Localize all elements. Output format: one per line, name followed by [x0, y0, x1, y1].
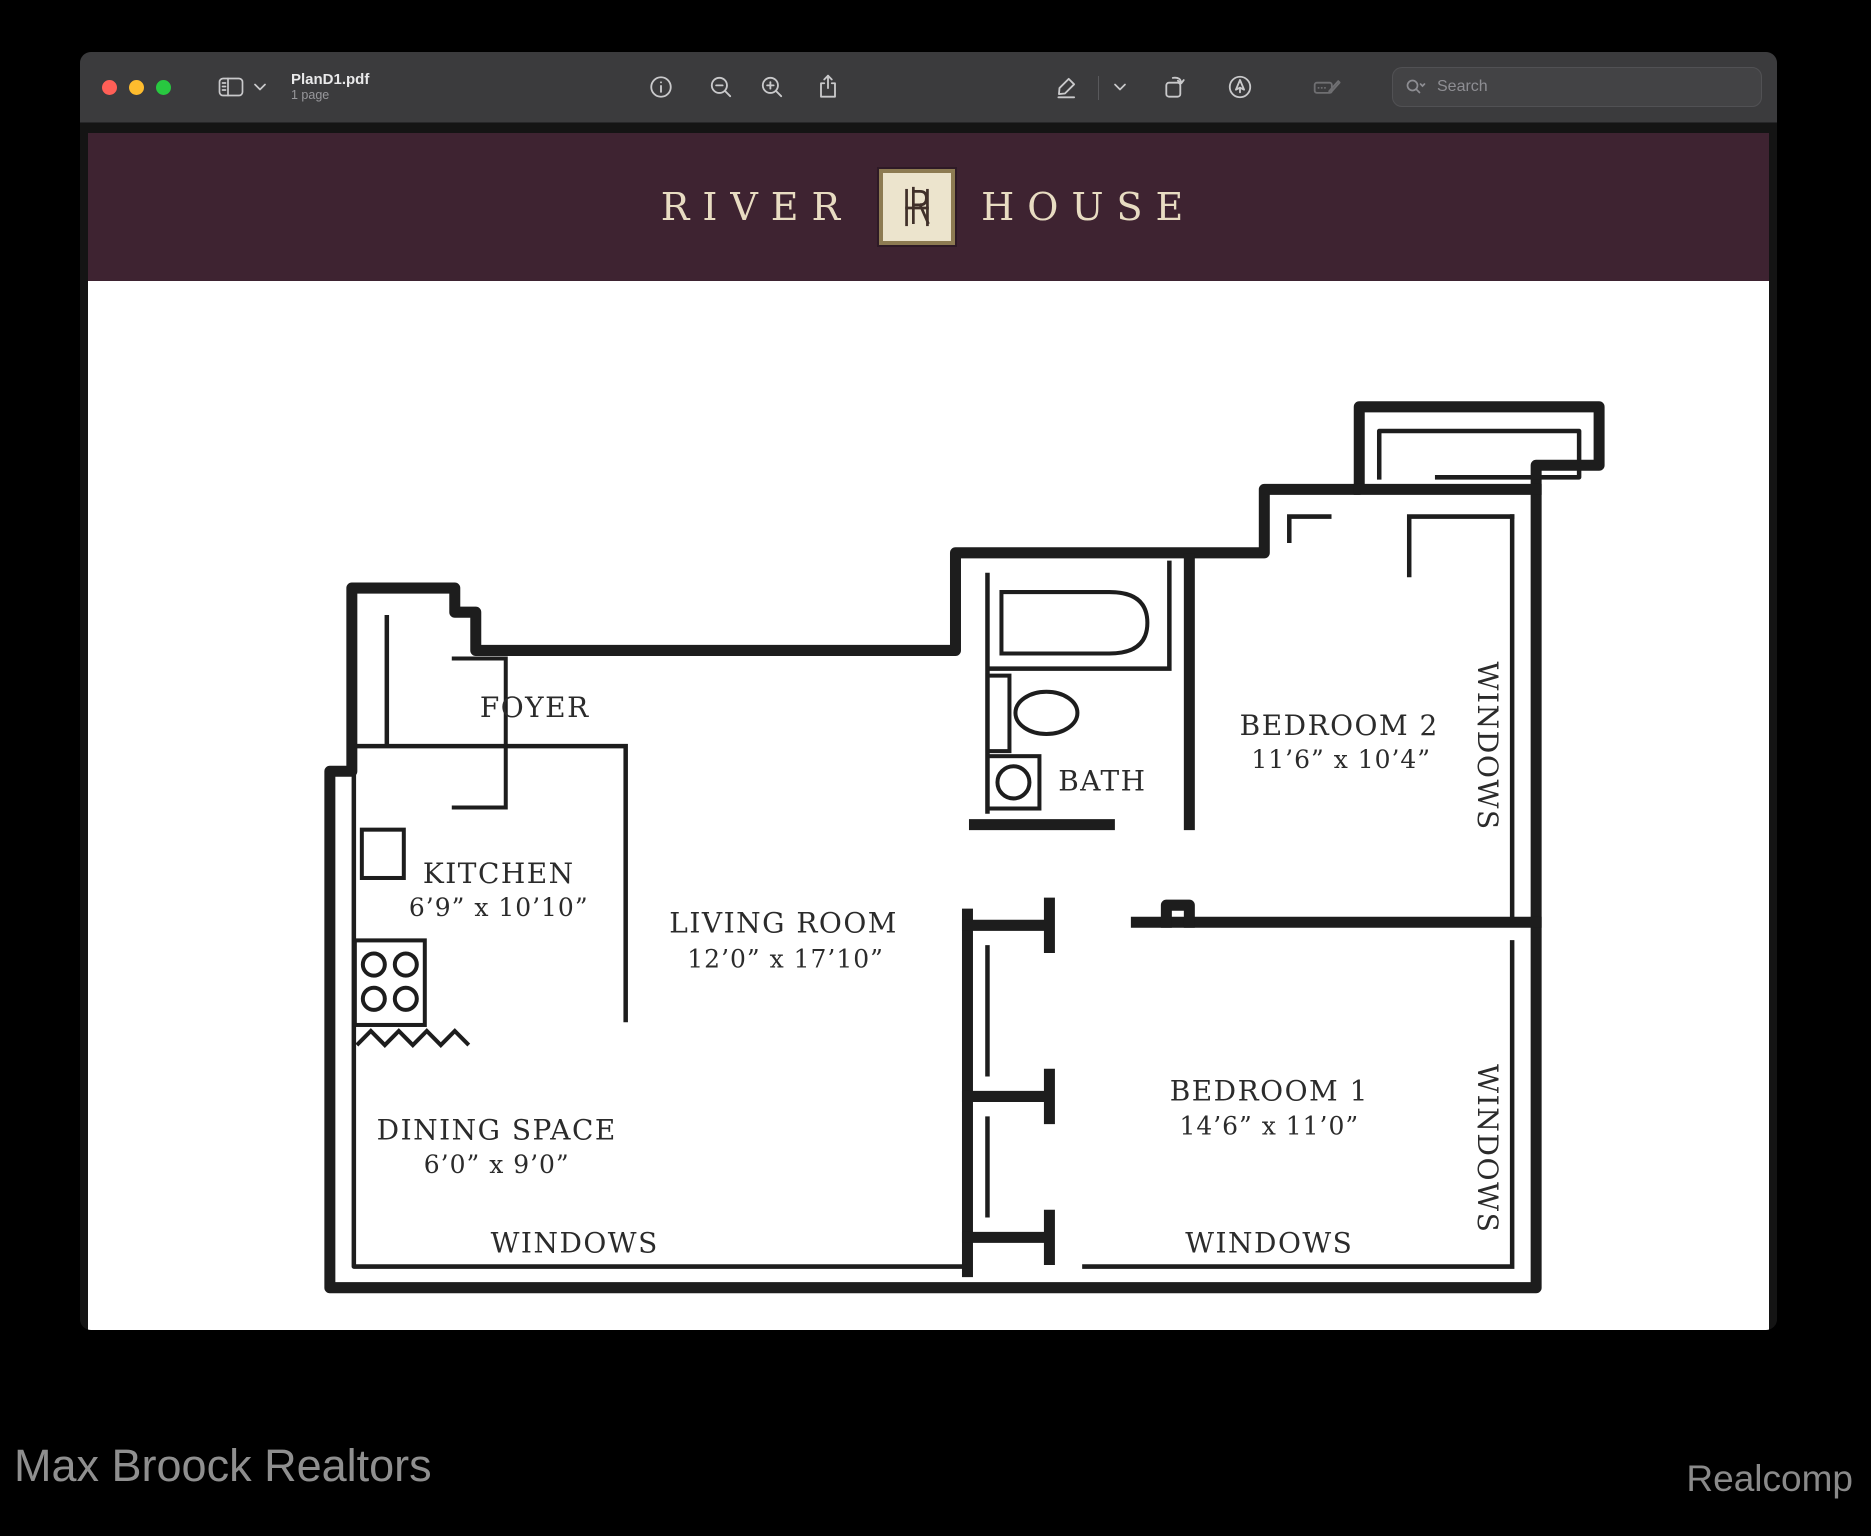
brand-house: HOUSE [981, 185, 1196, 229]
share-icon[interactable] [815, 73, 841, 101]
stove-burner-1 [363, 953, 385, 975]
stove-burner-3 [363, 988, 385, 1010]
kitchen-cabinet [362, 830, 404, 878]
bath-sink [997, 766, 1029, 798]
realcomp-watermark: Realcomp [1686, 1458, 1853, 1500]
pdf-content-area[interactable]: RIVER HOUSE [80, 123, 1777, 1330]
markup-chevron-icon[interactable] [1113, 82, 1127, 92]
room-label-foyer: FOYER [480, 691, 590, 724]
markup-pen-icon[interactable] [1053, 74, 1079, 100]
search-icon [1405, 78, 1427, 96]
room-label-kitchen: KITCHEN [423, 857, 575, 890]
room-label-bath: BATH [1058, 764, 1146, 797]
brand-river: RIVER [661, 185, 853, 229]
document-title-block: PlanD1.pdf 1 page [291, 71, 369, 103]
pdf-page: RIVER HOUSE [88, 133, 1769, 1330]
search-field[interactable] [1392, 67, 1762, 107]
bathtub [1001, 592, 1147, 653]
rh-monogram-icon [893, 183, 941, 231]
closet-tab-1 [967, 903, 1049, 947]
document-page-count: 1 page [291, 88, 369, 102]
form-fill-icon[interactable] [1312, 74, 1342, 100]
bedroom2-closet-walls [1289, 517, 1512, 575]
title-bar[interactable]: PlanD1.pdf 1 page [80, 52, 1777, 123]
windows-label-right-bottom: WINDOWS [1471, 1064, 1504, 1233]
kitchen-counter [452, 659, 506, 808]
room-dims-living: 12’0” x 17’10” [687, 944, 884, 973]
river-house-banner: RIVER HOUSE [88, 133, 1769, 281]
room-dims-kitchen: 6’9” x 10’10” [409, 893, 589, 922]
sidebar-chevron-icon[interactable] [253, 82, 267, 92]
windows-label-bottom-right: WINDOWS [1185, 1226, 1353, 1259]
annotate-pen-icon[interactable] [1226, 73, 1254, 101]
sidebar-icon[interactable] [217, 75, 245, 99]
rh-monogram-logo [879, 169, 955, 245]
windows-label-right-top: WINDOWS [1471, 661, 1504, 830]
stove [355, 940, 425, 1025]
stove-burner-4 [395, 988, 417, 1010]
search-input[interactable] [1435, 77, 1749, 97]
closet-tab-2 [967, 1074, 1049, 1118]
closet-tab-3 [967, 1215, 1049, 1259]
toilet-tank [987, 676, 1009, 752]
zoom-in-icon[interactable] [759, 74, 785, 100]
bath-sink-counter [987, 756, 1039, 808]
rotate-left-icon[interactable] [1162, 73, 1190, 101]
close-button[interactable] [102, 80, 117, 95]
toilet-bowl [1015, 692, 1077, 734]
room-label-bedroom1: BEDROOM 1 [1170, 1074, 1369, 1107]
preview-window: PlanD1.pdf 1 page [80, 52, 1777, 1330]
room-dims-bedroom1: 14’6” x 11’0” [1179, 1112, 1359, 1141]
room-dims-bedroom2: 11’6” x 10’4” [1251, 745, 1431, 774]
info-icon[interactable] [648, 74, 674, 100]
desktop: PlanD1.pdf 1 page [0, 0, 1871, 1536]
stove-burner-2 [395, 953, 417, 975]
toolbar-separator [1098, 76, 1099, 100]
windows-label-bottom-left: WINDOWS [491, 1226, 659, 1259]
room-label-living: LIVING ROOM [669, 906, 898, 939]
room-dims-dining: 6’0” x 9’0” [424, 1150, 570, 1179]
realtor-watermark: Max Broock Realtors [14, 1440, 432, 1492]
traffic-lights [102, 80, 171, 95]
kitchen-zigzag [357, 1031, 469, 1045]
floor-plan-area: FOYER KITCHEN 6’9” x 10’10” LIVING ROOM … [88, 281, 1769, 1330]
left-window-wall [354, 774, 965, 1266]
floor-plan-svg: FOYER KITCHEN 6’9” x 10’10” LIVING ROOM … [88, 281, 1769, 1330]
zoom-out-icon[interactable] [708, 74, 734, 100]
room-label-dining: DINING SPACE [377, 1114, 617, 1147]
document-title: PlanD1.pdf [291, 71, 369, 88]
minimize-button[interactable] [129, 80, 144, 95]
fullscreen-button[interactable] [156, 80, 171, 95]
room-label-bedroom2: BEDROOM 2 [1240, 709, 1439, 742]
